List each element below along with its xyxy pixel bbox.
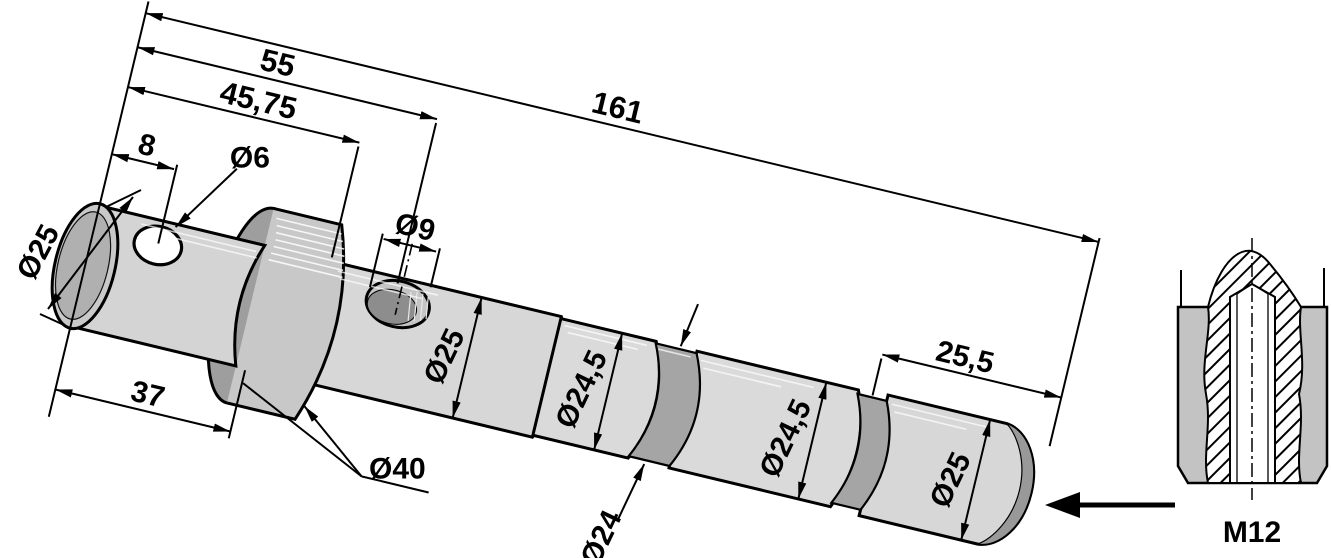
technical-drawing-page: 161 55 45,75 8 37 25,5 Ø9 Ø6 Ø40 Ø25 Ø24… — [0, 0, 1331, 558]
dim-total-length: 161 — [588, 84, 646, 130]
dim-collar-diameter: Ø40 — [369, 453, 426, 486]
reference-arrow-head — [1045, 492, 1080, 518]
dim-pin-hole: Ø6 — [230, 142, 270, 175]
thread-size-label: M12 — [1223, 516, 1281, 549]
shaft-drawing: 161 55 45,75 8 37 25,5 Ø9 Ø6 Ø40 Ø25 Ø24… — [0, 0, 1331, 558]
reference-arrow — [1045, 492, 1175, 518]
detail-section-view: M12 — [1178, 238, 1327, 549]
dim-hole-offset: 8 — [135, 128, 159, 164]
shaft-pictorial-view: 161 55 45,75 8 37 25,5 Ø9 Ø6 Ø40 Ø25 Ø24… — [15, 0, 1107, 558]
dim-end-length: 25,5 — [933, 335, 997, 381]
